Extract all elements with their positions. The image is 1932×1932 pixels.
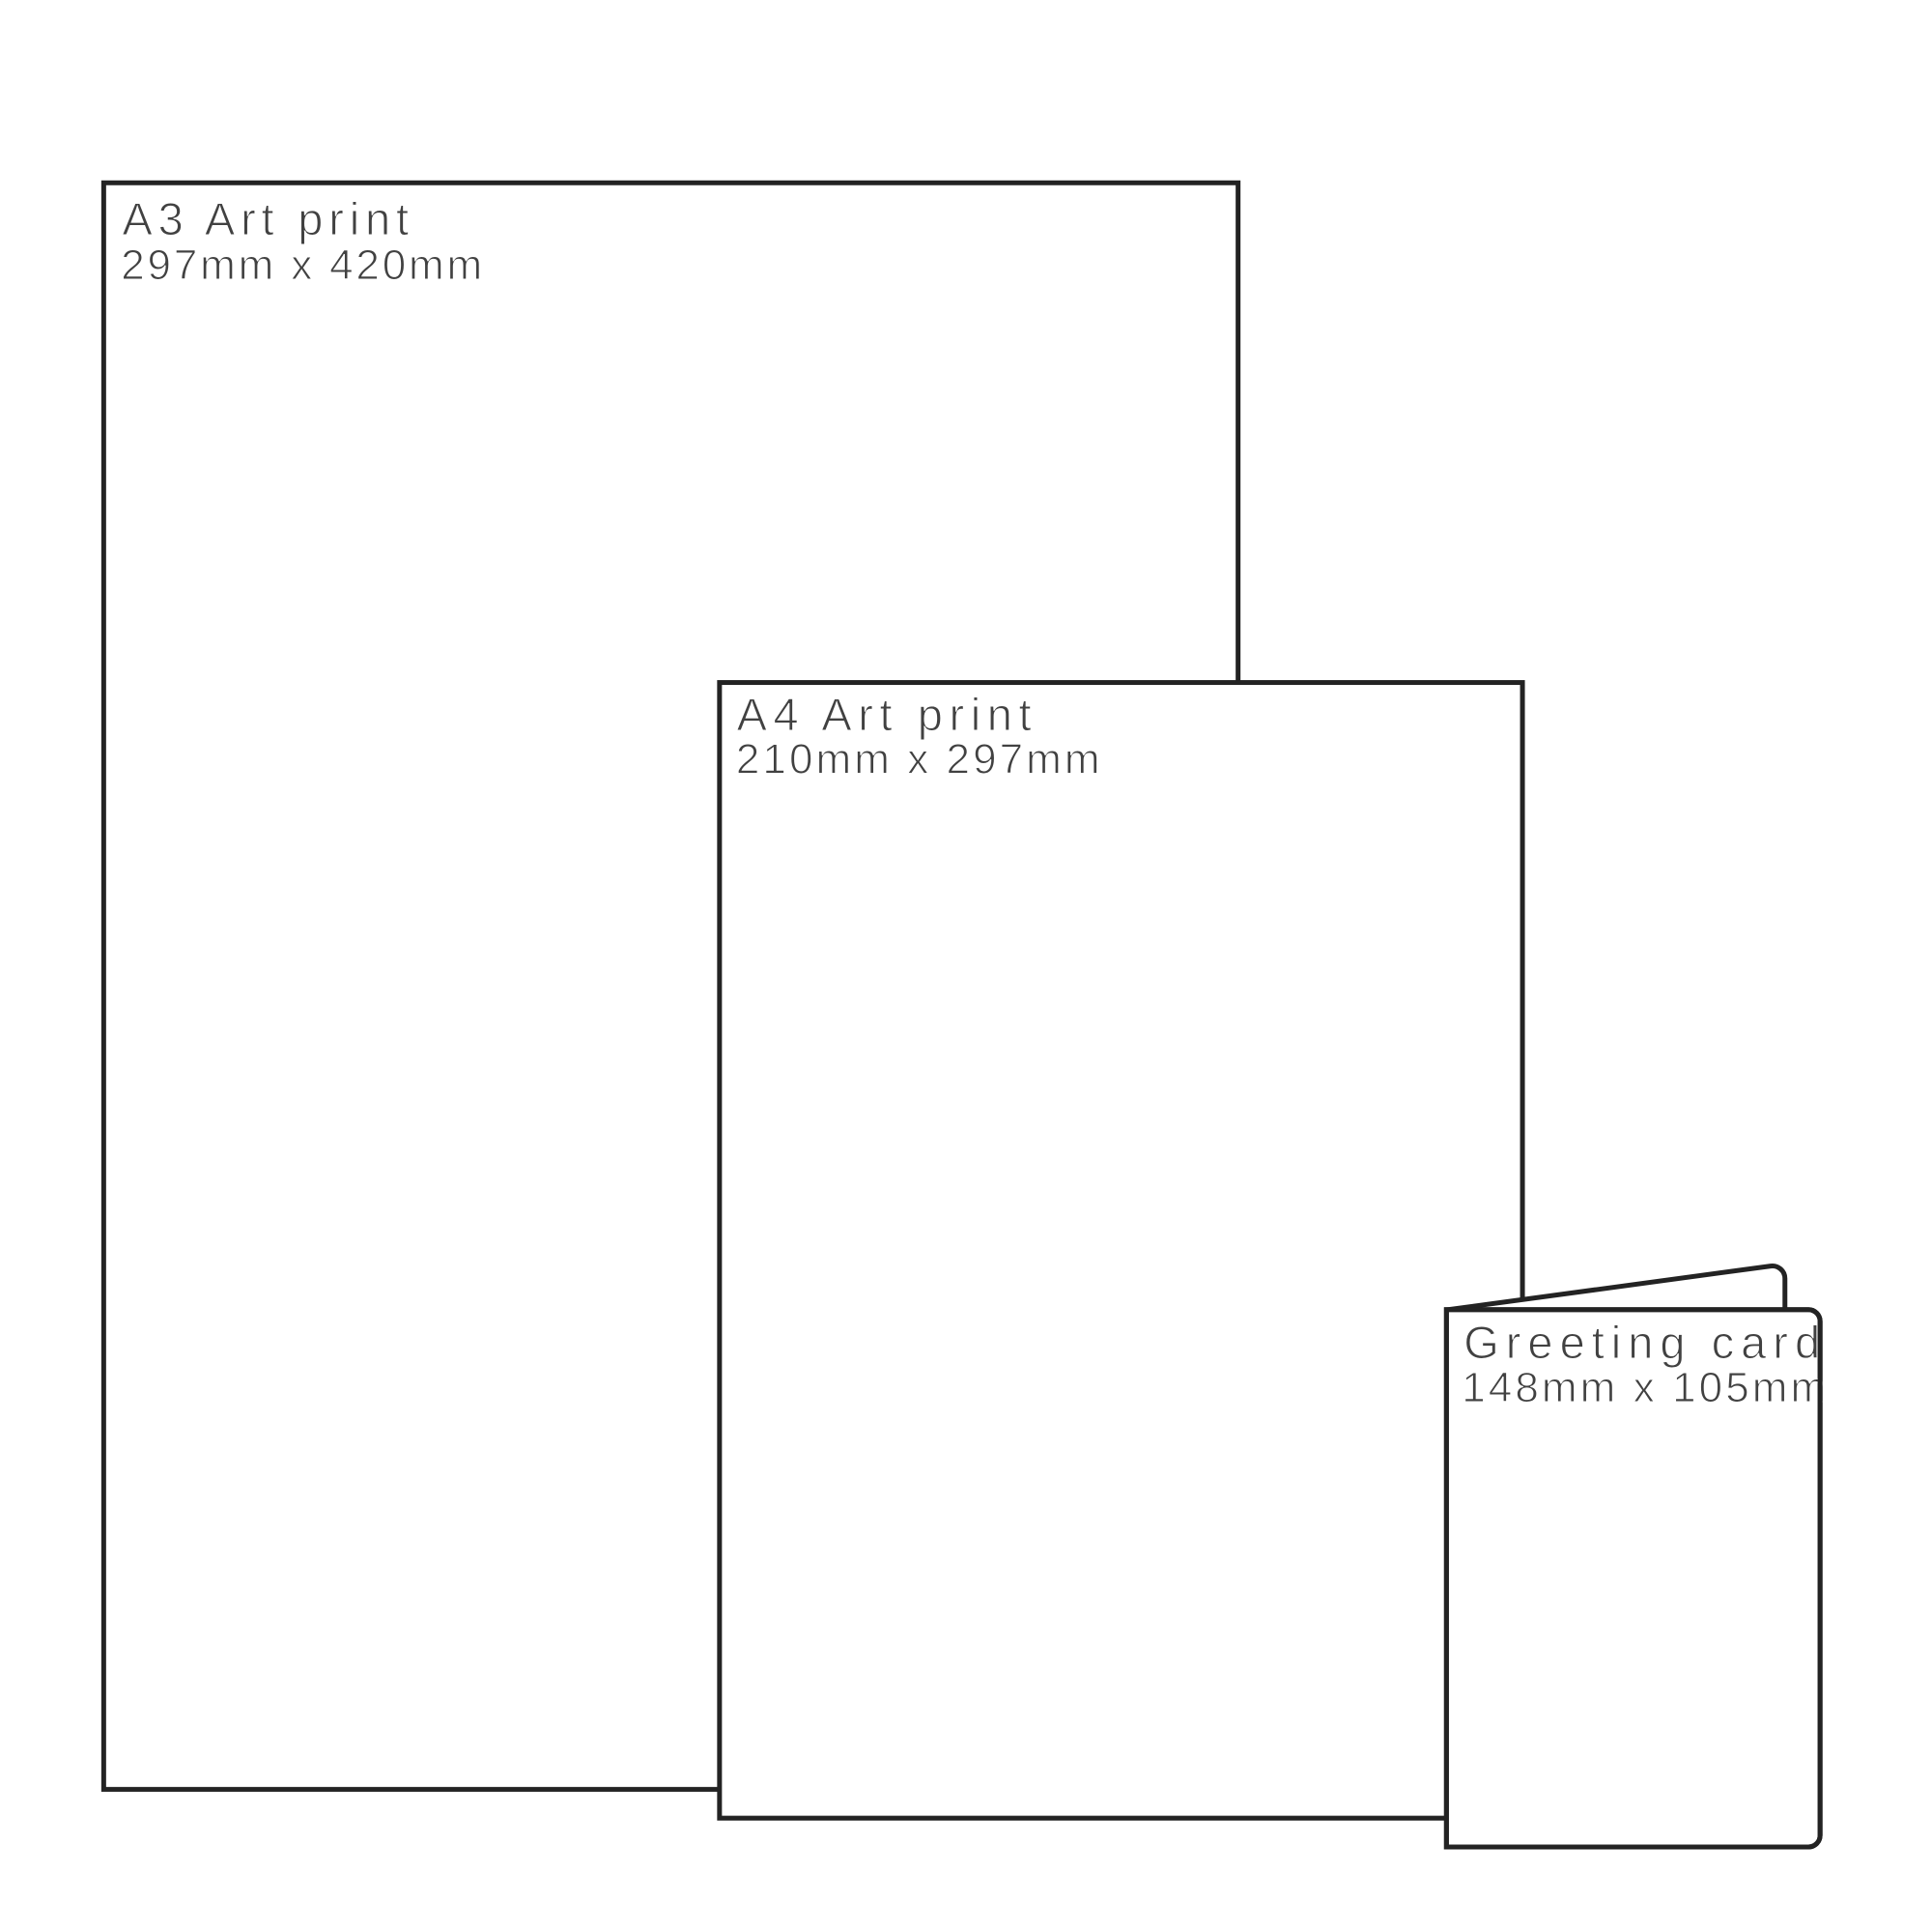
svg-text:A4 Art print: A4 Art print [737,689,1032,740]
svg-text:148mm x 105mm: 148mm x 105mm [1462,1364,1826,1411]
svg-text:297mm x 420mm: 297mm x 420mm [121,241,482,289]
svg-text:A3 Art print: A3 Art print [123,193,410,244]
svg-text:210mm x 297mm: 210mm x 297mm [736,736,1100,783]
